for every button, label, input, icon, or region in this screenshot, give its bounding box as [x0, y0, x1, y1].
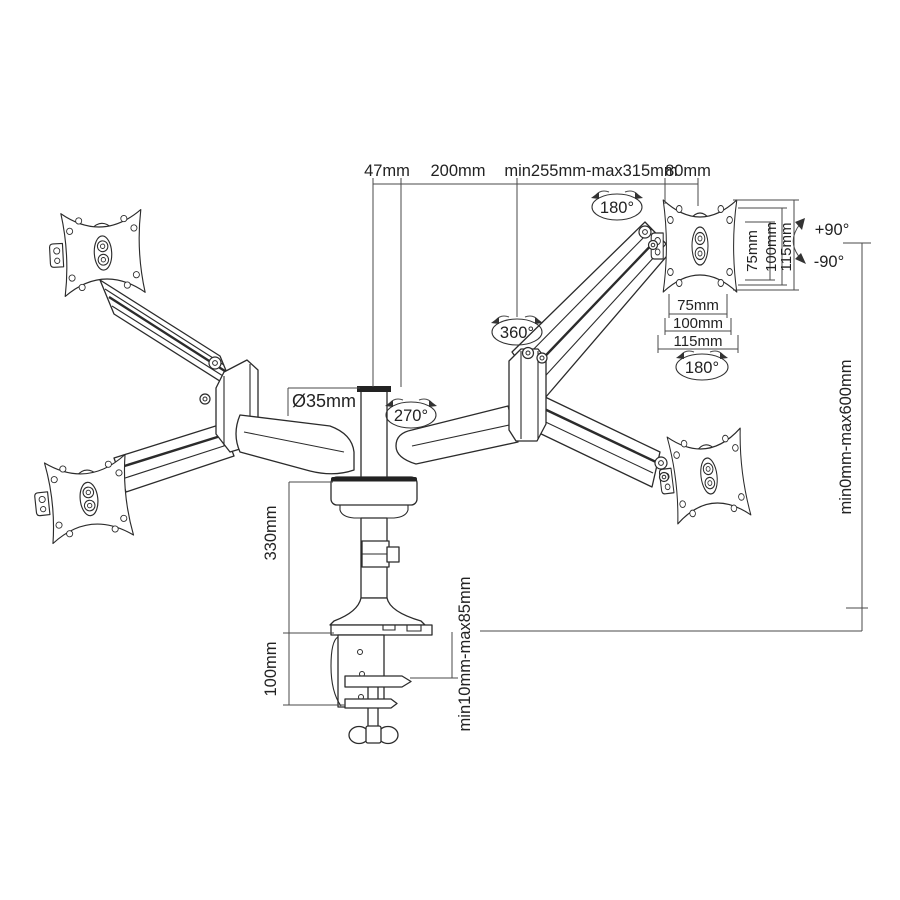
right-elbow-joint	[509, 348, 547, 442]
left-height-dims: 330mm 100mm	[262, 482, 345, 705]
clamp-bottom-jaw	[345, 699, 397, 708]
dim-tilt-down: -90°	[814, 253, 844, 271]
label-360: 360°	[500, 324, 534, 342]
tilt-dim: +90° -90°	[793, 218, 849, 271]
left-link-arm	[236, 415, 354, 474]
vesa-plate-bottom-right	[655, 428, 751, 525]
dim-tilt-up: +90°	[815, 221, 850, 239]
base-cone	[330, 598, 425, 625]
dim-80mm: 80mm	[665, 162, 711, 180]
label-180-top: 180°	[600, 199, 634, 217]
clamp-wing-knob	[349, 726, 398, 744]
dim-min255-max315: min255mm-max315mm	[504, 162, 677, 180]
desk-clamp	[331, 625, 432, 744]
dim-47mm: 47mm	[364, 162, 410, 180]
cable-clip	[362, 541, 399, 567]
vesa-plate-bottom-left	[31, 455, 133, 545]
label-180-bottom: 180°	[685, 359, 719, 377]
vesa-horizontal-dims: 75mm 100mm 115mm	[658, 294, 738, 353]
rotation-callout-base-270: 270°	[385, 399, 437, 428]
clamp-top-plate	[331, 625, 432, 635]
left-arm-assembly	[100, 280, 354, 492]
dim-330mm: 330mm	[262, 505, 280, 560]
pole-upper	[361, 391, 387, 479]
vesa-vertical-dims: 75mm 100mm 115mm	[733, 200, 799, 290]
monitor-arm-diagram: 47mm 200mm min255mm-max315mm 80mm 180° 3…	[0, 0, 900, 900]
vesa-plate-top-left	[48, 210, 145, 298]
right-arm-assembly	[396, 222, 672, 487]
rotation-callout-arm-180: 180°	[591, 191, 643, 220]
pole-diameter-dim: Ø35mm	[288, 388, 360, 416]
dim-200mm: 200mm	[430, 162, 485, 180]
dim-vesa-h-115: 115mm	[674, 333, 723, 350]
pole-cap	[357, 386, 391, 392]
dim-desk-thickness: min10mm-max85mm	[456, 577, 474, 732]
dim-height-range: min0mm-max600mm	[837, 360, 855, 515]
dim-vesa-v-75: 75mm	[744, 230, 761, 272]
rotation-callout-vesa-180: 180°	[676, 351, 728, 380]
label-270: 270°	[394, 407, 428, 425]
dim-vesa-v-115: 115mm	[778, 223, 795, 272]
desk-thickness-dim: min10mm-max85mm	[410, 577, 474, 732]
dim-vesa-h-100: 100mm	[673, 315, 723, 332]
left-upper-arm	[100, 280, 234, 390]
technical-drawing-page: 47mm 200mm min255mm-max315mm 80mm 180° 3…	[0, 0, 900, 900]
dim-100mm: 100mm	[262, 641, 280, 696]
dim-pole-diameter: Ø35mm	[292, 391, 356, 411]
clamp-middle-jaw	[345, 676, 411, 687]
arm-hub-collar	[331, 477, 417, 518]
dim-vesa-h-75: 75mm	[677, 297, 719, 314]
